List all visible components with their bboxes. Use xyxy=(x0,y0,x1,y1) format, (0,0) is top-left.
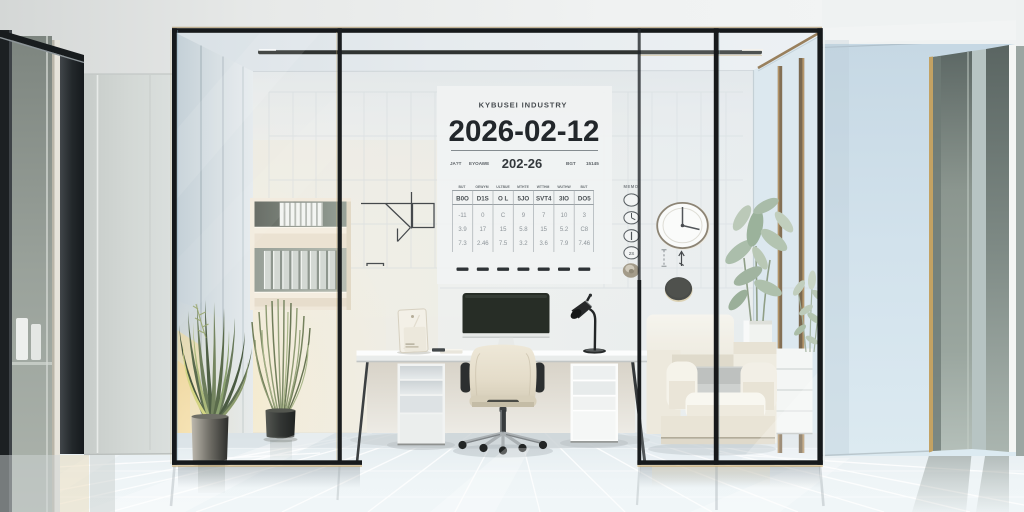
svg-text:7.3: 7.3 xyxy=(458,241,467,247)
svg-text:10: 10 xyxy=(561,213,568,219)
svg-text:B0O: B0O xyxy=(456,196,469,203)
svg-text:BGT: BGT xyxy=(566,161,576,166)
svg-text:17: 17 xyxy=(479,227,486,233)
svg-text:5.8: 5.8 xyxy=(519,227,528,233)
svg-text:3.6: 3.6 xyxy=(540,241,549,247)
svg-text:15145: 15145 xyxy=(586,161,599,166)
svg-text:JA?T: JA?T xyxy=(450,161,462,166)
svg-text:WTTHM: WTTHM xyxy=(537,185,550,189)
svg-text:202-26: 202-26 xyxy=(502,156,542,171)
svg-text:OEWYM: OEWYM xyxy=(475,185,488,189)
svg-text:15: 15 xyxy=(540,227,547,233)
svg-text:3.2: 3.2 xyxy=(519,241,528,247)
svg-text:3.9: 3.9 xyxy=(458,227,467,233)
svg-text:C: C xyxy=(501,213,506,219)
svg-text:C8: C8 xyxy=(580,227,588,233)
svg-text:MTHTE: MTHTE xyxy=(517,185,529,189)
svg-text:ULTBUE: ULTBUE xyxy=(496,185,510,189)
svg-text:2.46: 2.46 xyxy=(477,241,489,247)
svg-text:BUT: BUT xyxy=(581,185,589,189)
svg-text:2026-02-12: 2026-02-12 xyxy=(449,115,600,148)
svg-text:EYOAWE: EYOAWE xyxy=(469,161,489,166)
svg-text:7.9: 7.9 xyxy=(560,241,569,247)
svg-text:15: 15 xyxy=(500,227,507,233)
svg-text:O L: O L xyxy=(498,196,509,203)
svg-text:7.5: 7.5 xyxy=(499,241,508,247)
svg-text:KYBUSEI INDUSTRY: KYBUSEI INDUSTRY xyxy=(479,101,568,110)
svg-text:MEMO: MEMO xyxy=(623,184,638,189)
svg-text:WUTHW: WUTHW xyxy=(557,185,571,189)
svg-text:5JO: 5JO xyxy=(518,196,530,203)
svg-text:5.2: 5.2 xyxy=(560,227,569,233)
svg-text:3IO: 3IO xyxy=(559,196,569,203)
svg-text:7.46: 7.46 xyxy=(578,241,590,247)
svg-text:2S: 2S xyxy=(629,251,635,256)
svg-text:SVT4: SVT4 xyxy=(536,196,552,203)
svg-text:BUT: BUT xyxy=(459,185,467,189)
svg-text:DO5: DO5 xyxy=(578,196,591,203)
svg-text:-11: -11 xyxy=(458,213,467,219)
svg-text:D1S: D1S xyxy=(477,196,489,203)
